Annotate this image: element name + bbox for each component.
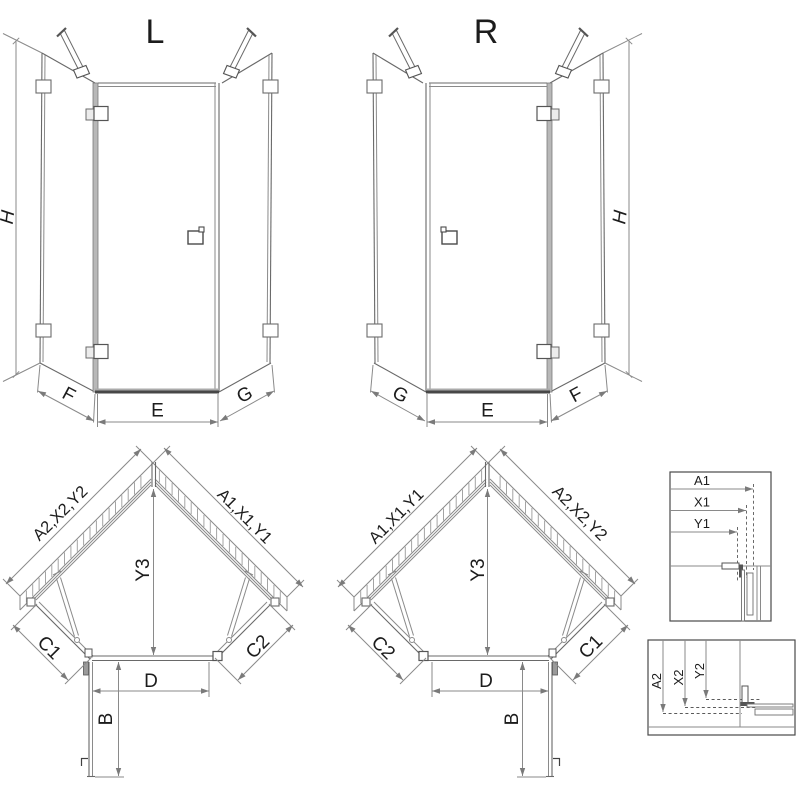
arrowhead bbox=[116, 768, 121, 776]
wall-hinge-block bbox=[27, 598, 35, 606]
detail-label-y2: Y2 bbox=[692, 663, 707, 679]
wall-bracket bbox=[263, 324, 278, 337]
dim-label-c2: C2 bbox=[242, 631, 274, 663]
dim-label-b: B bbox=[96, 713, 117, 726]
wall-bracket bbox=[36, 324, 51, 337]
door-hinge-bottom bbox=[86, 345, 108, 359]
arrowhead bbox=[93, 688, 101, 693]
arrowhead bbox=[266, 391, 274, 397]
dim-label-g: G bbox=[389, 382, 412, 407]
shower-enclosure-technical-drawing: A1 X1 Y1 A2 X2 Y2 L H F E G R H G E bbox=[0, 0, 800, 800]
dim-label-c2: C2 bbox=[367, 632, 399, 664]
labels-plan-left: A2,X2,Y2 A1,X1,Y1 Y3 C1 C2 D B bbox=[29, 482, 275, 725]
detail-label-x1: X1 bbox=[694, 495, 710, 510]
arrowhead bbox=[151, 647, 156, 655]
dim-label-d: D bbox=[144, 671, 158, 692]
detail-box-a1x1y1: A1 X1 Y1 bbox=[670, 472, 771, 621]
arrowhead bbox=[116, 662, 121, 670]
open-door bbox=[81, 662, 95, 777]
dim-label-c1: C1 bbox=[33, 632, 65, 664]
corner-profile bbox=[213, 652, 222, 661]
plan-view-linework bbox=[3, 446, 304, 777]
wall-bracket bbox=[263, 80, 278, 93]
arrowhead bbox=[151, 489, 156, 497]
arrowhead bbox=[210, 419, 218, 424]
front-view-linework-mirrored bbox=[367, 28, 642, 427]
dim-label-h: H bbox=[609, 209, 632, 225]
wall-bracket bbox=[36, 80, 51, 93]
arrowhead bbox=[38, 391, 46, 397]
variant-label-l: L bbox=[146, 13, 165, 51]
door-handle bbox=[188, 227, 204, 244]
arrowhead bbox=[98, 419, 106, 424]
support-bar-plan-left bbox=[53, 571, 80, 643]
dim-label-y3: Y3 bbox=[468, 558, 489, 581]
plan-hinge bbox=[84, 662, 89, 675]
detail-label-x2: X2 bbox=[671, 670, 686, 686]
dim-label-d: D bbox=[479, 671, 493, 692]
dim-label-wall-right: A2,X2,Y2 bbox=[549, 482, 611, 544]
dim-label-e: E bbox=[151, 401, 164, 422]
arrowhead bbox=[201, 688, 209, 693]
arrowhead bbox=[220, 415, 228, 421]
front-view-linework bbox=[3, 28, 278, 427]
threshold-profile bbox=[95, 391, 219, 394]
support-bar-plan-right bbox=[227, 571, 254, 643]
plan-hinge-cap bbox=[85, 649, 92, 657]
variant-label-r: R bbox=[474, 13, 499, 51]
labels-front-left: L H F E G bbox=[0, 13, 256, 422]
dim-label-y3: Y3 bbox=[133, 558, 154, 581]
support-bar-left bbox=[57, 28, 90, 78]
dim-wall-right bbox=[153, 446, 304, 597]
dim-label-h: H bbox=[0, 209, 19, 225]
dim-label-wall-left: A2,X2,Y2 bbox=[29, 482, 91, 544]
dim-label-b: B bbox=[502, 713, 523, 726]
wall-hinge-block bbox=[271, 598, 279, 606]
detail-label-a1: A1 bbox=[694, 473, 710, 488]
dim-label-c1: C1 bbox=[575, 631, 607, 663]
support-bar-right bbox=[224, 28, 257, 78]
threshold bbox=[95, 389, 219, 391]
detail-label-a2: A2 bbox=[649, 673, 664, 689]
door-hinge-top bbox=[86, 107, 108, 121]
dim-label-e: E bbox=[481, 401, 494, 422]
arrowhead bbox=[86, 415, 94, 421]
dim-wall-left bbox=[3, 446, 153, 596]
labels-front-right: R H G E F bbox=[389, 13, 632, 422]
detail-box-a2x2y2: A2 X2 Y2 bbox=[648, 640, 795, 735]
detail-label-y1: Y1 bbox=[694, 516, 710, 531]
plan-view-linework-mirrored bbox=[337, 446, 638, 777]
dim-label-g: G bbox=[233, 382, 256, 407]
